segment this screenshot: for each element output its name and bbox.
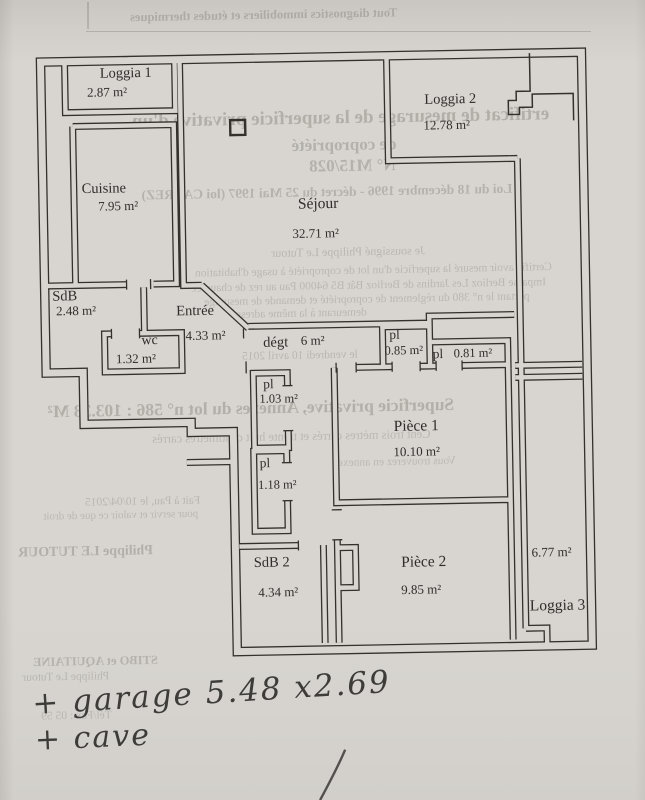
room-label-sejour: Séjour bbox=[298, 196, 339, 212]
room-area-entree: 4.33 m² bbox=[185, 328, 225, 342]
room-label-loggia3: Loggia 3 bbox=[530, 597, 586, 614]
room-area-sdb: 2.48 m² bbox=[56, 304, 96, 318]
scanned-floorplan-page: Tout diagnostics immobiliers et études t… bbox=[0, 0, 645, 800]
room-label-loggia1: Loggia 1 bbox=[100, 66, 152, 81]
room-area-degt: 6 m² bbox=[301, 333, 325, 346]
room-area-cuisine: 7.95 m² bbox=[98, 199, 138, 213]
room-label-sdb2: SdB 2 bbox=[254, 555, 290, 570]
room-label-cuisine: Cuisine bbox=[82, 181, 127, 196]
room-label-entree: Entrée bbox=[176, 304, 214, 319]
room-area-loggia2: 12.78 m² bbox=[423, 118, 470, 132]
room-area-pl-103: 1.03 m² bbox=[259, 392, 298, 405]
room-label-degt: dégt bbox=[263, 335, 288, 350]
room-area-loggia1: 2.87 m² bbox=[87, 85, 127, 99]
room-area-piece2: 9.85 m² bbox=[401, 582, 441, 596]
room-label-pl-081: pl bbox=[433, 347, 444, 361]
room-area-wc: 1.32 m² bbox=[116, 352, 156, 366]
room-area-loggia3: 6.77 m² bbox=[531, 545, 571, 559]
room-area-pl-085: 0.85 m² bbox=[384, 344, 423, 357]
room-label-wc: wc bbox=[141, 334, 158, 348]
room-label-sdb: SdB bbox=[52, 289, 77, 304]
room-label-loggia2: Loggia 2 bbox=[424, 92, 476, 107]
pen-stroke bbox=[319, 750, 346, 800]
room-area-sejour: 32.71 m² bbox=[292, 226, 339, 240]
room-label-piece2: Pièce 2 bbox=[401, 554, 446, 570]
room-label-pl-085: pl bbox=[389, 328, 400, 342]
room-area-sdb2: 4.34 m² bbox=[258, 585, 298, 599]
handwritten-note-cave: + cave bbox=[34, 721, 151, 756]
room-area-piece1: 10.10 m² bbox=[393, 444, 440, 458]
pillar-marker bbox=[230, 120, 245, 135]
room-label-pl-118: pl bbox=[259, 456, 270, 470]
room-area-pl-118: 1.18 m² bbox=[258, 478, 297, 491]
loggia2-zigzag-wall bbox=[507, 52, 573, 121]
room-label-piece1: Pièce 1 bbox=[393, 418, 438, 434]
scan-content: Tout diagnostics immobiliers et études t… bbox=[0, 0, 645, 800]
room-area-pl-081: 0.81 m² bbox=[454, 347, 493, 360]
room-label-pl-103: pl bbox=[263, 377, 274, 391]
